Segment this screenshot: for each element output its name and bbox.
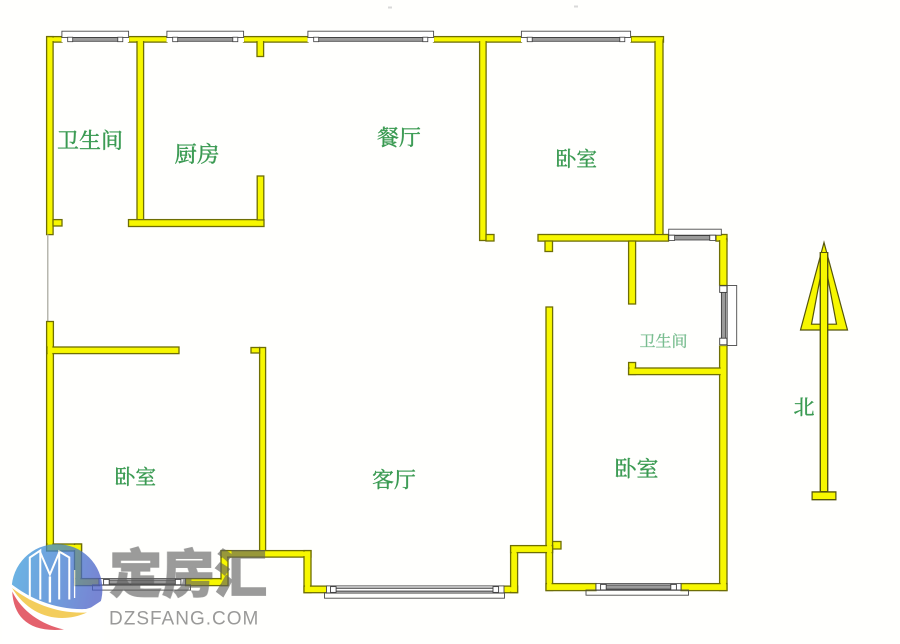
svg-text:DZSFANG.COM: DZSFANG.COM — [109, 609, 259, 630]
